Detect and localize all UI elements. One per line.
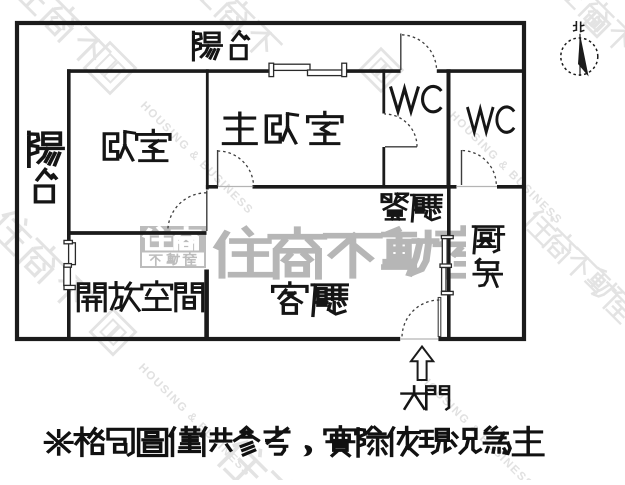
svg-text:HOUSING & BUSINESS: HOUSING & BUSINESS: [136, 362, 254, 480]
svg-text:HOUSING & BUSINESS: HOUSING & BUSINESS: [447, 110, 565, 228]
